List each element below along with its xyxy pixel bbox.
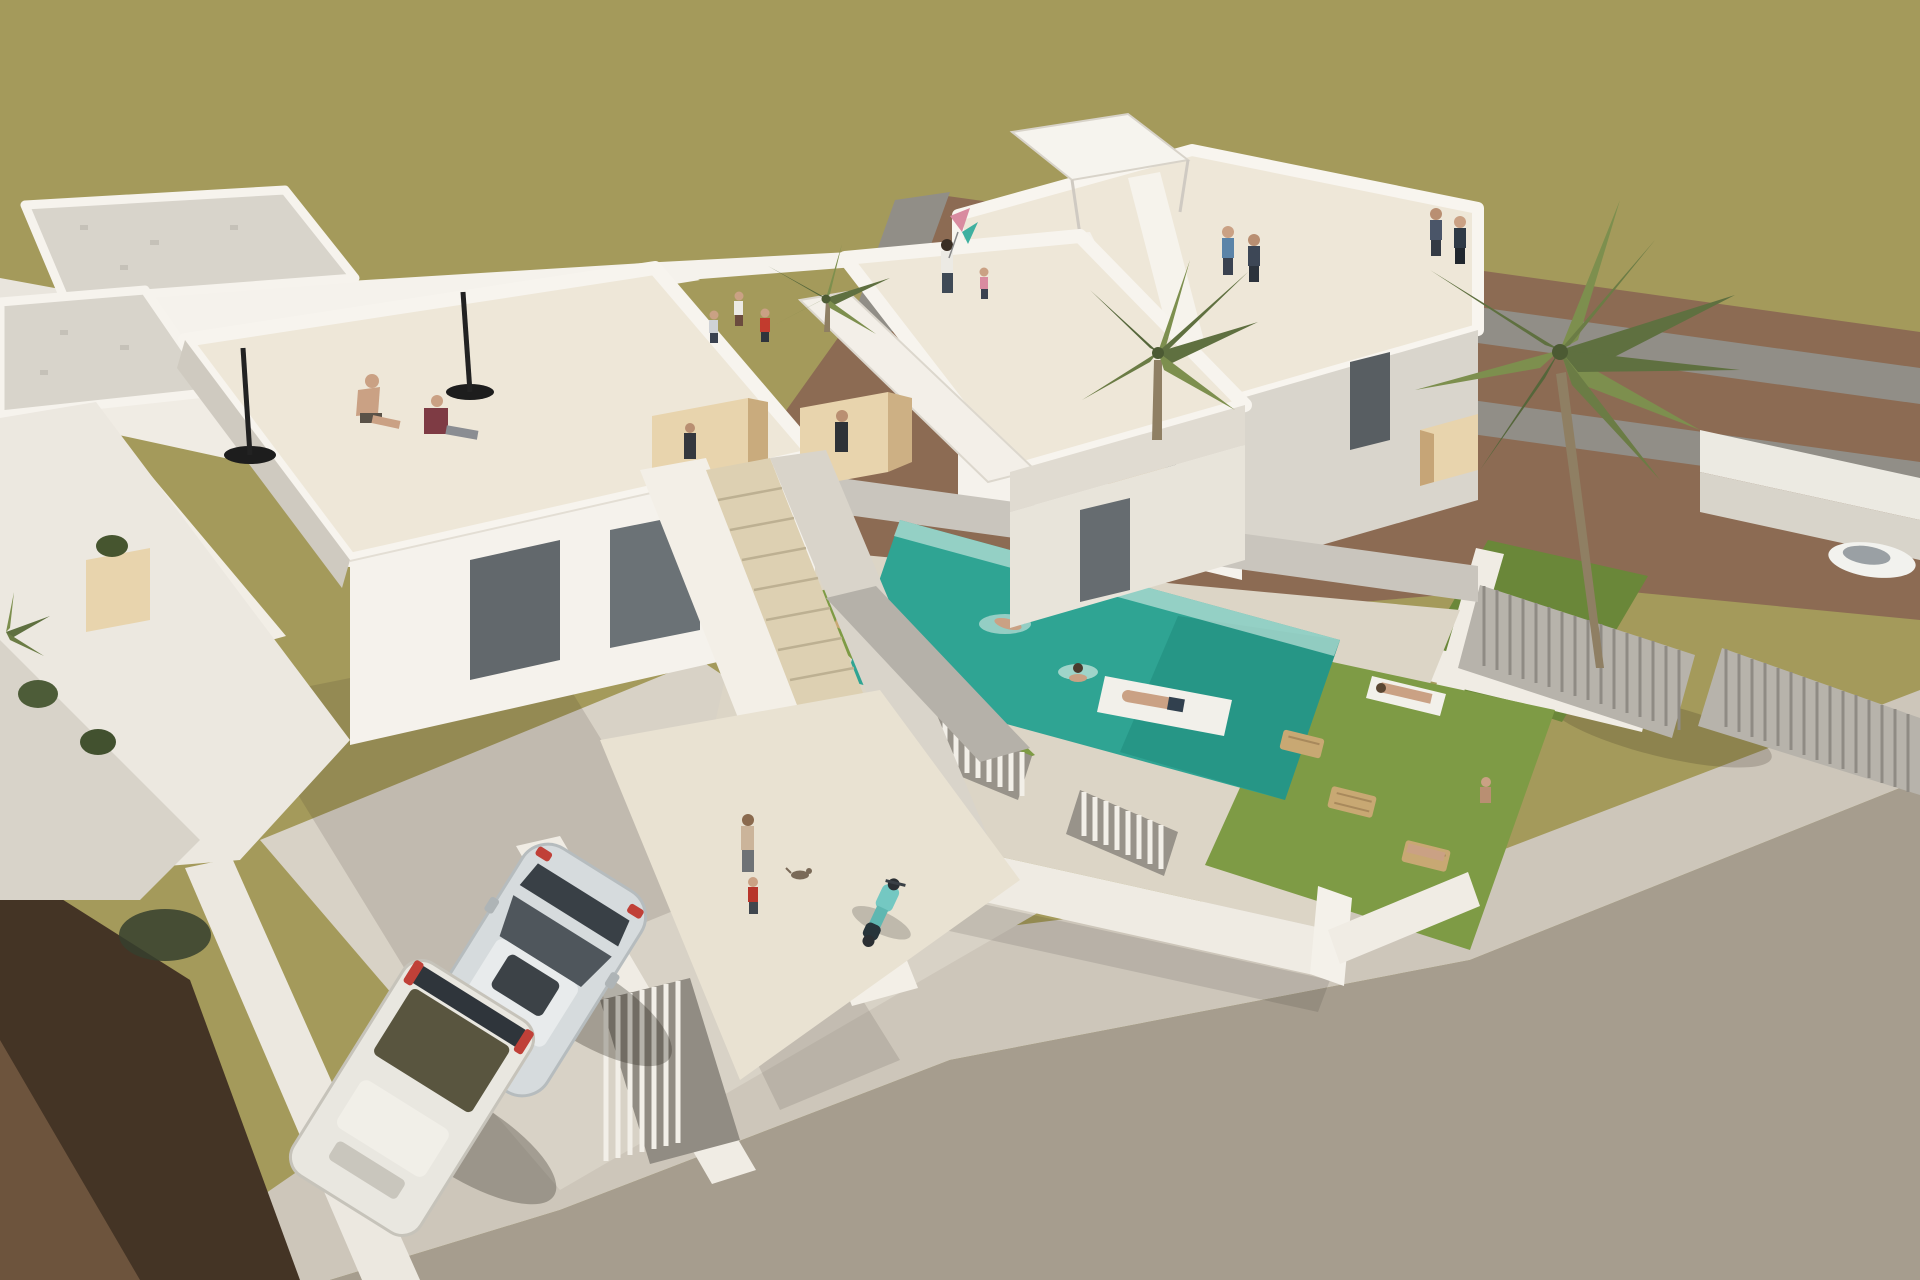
right-villa-window-3	[1350, 352, 1390, 450]
villa-render	[0, 0, 1920, 1280]
person	[1222, 226, 1234, 275]
person-boy	[748, 877, 758, 914]
shrub	[80, 729, 116, 755]
person-father	[741, 814, 754, 872]
glass-door	[470, 540, 560, 680]
glass-door	[1080, 498, 1130, 602]
person-sitting	[1480, 777, 1491, 803]
person-by-stairs	[835, 410, 848, 452]
person	[1430, 208, 1442, 256]
child	[760, 309, 770, 343]
person	[1248, 234, 1260, 282]
shrub	[18, 680, 58, 708]
child	[734, 292, 744, 327]
child	[709, 311, 719, 344]
render-canvas	[0, 0, 1920, 1280]
person-on-balcony	[684, 423, 696, 459]
person	[1454, 216, 1466, 264]
dark-shrub-patch	[119, 909, 211, 961]
